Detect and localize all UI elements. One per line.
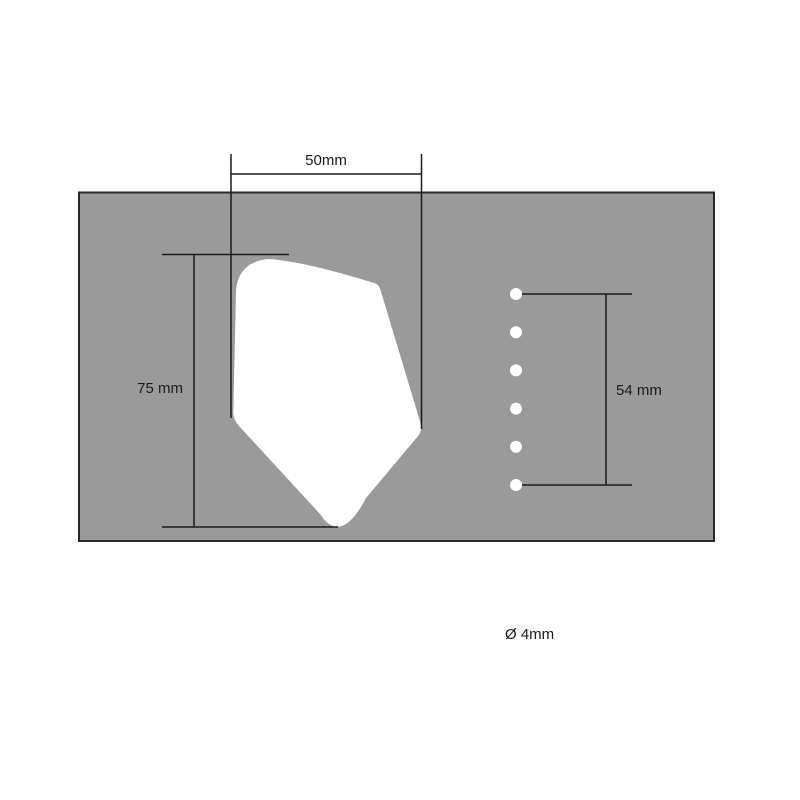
drawing-page: 50mm 75 mm 54 mm Ø 4mm [0,0,800,800]
hole [510,403,522,415]
hole [510,326,522,338]
width-dimension-label: 50mm [276,153,376,169]
hole [510,441,522,453]
hole-span-dimension-label: 54 mm [616,383,662,399]
hole [510,288,522,300]
technical-drawing [0,0,800,800]
height-dimension-label: 75 mm [103,381,183,397]
hole-diameter-label: Ø 4mm [505,627,554,643]
hole [510,364,522,376]
hole [510,479,522,491]
